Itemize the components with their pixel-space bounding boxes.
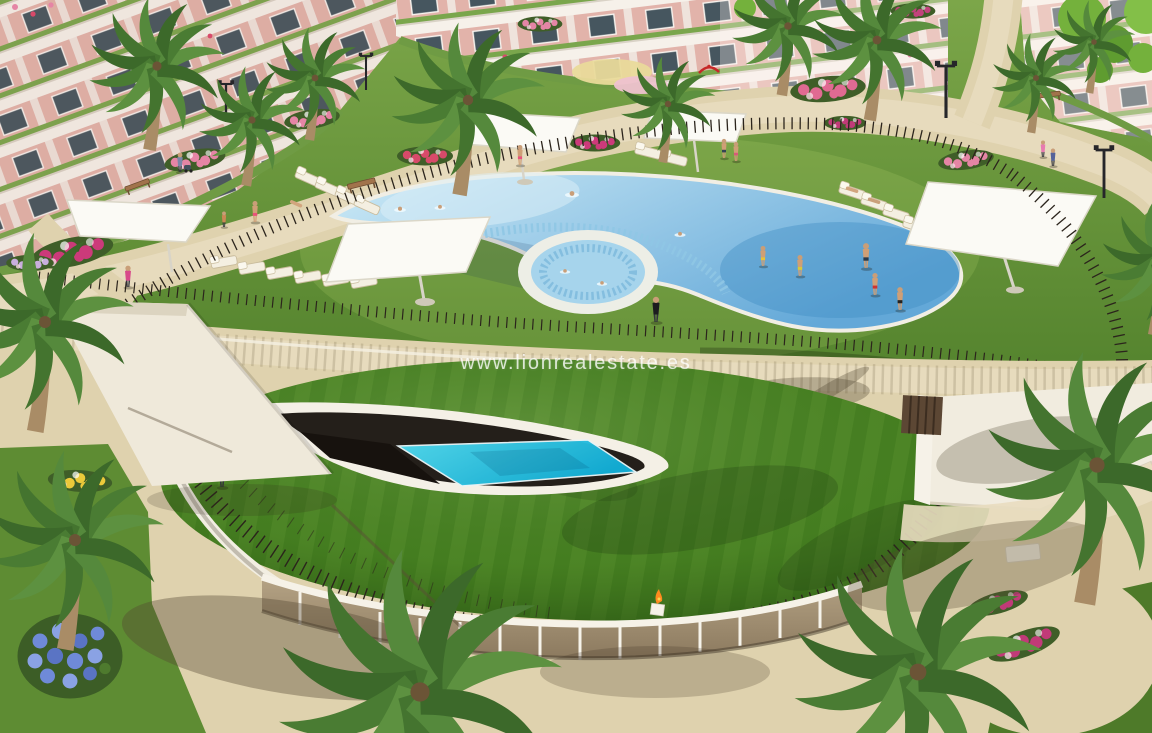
kids-pool — [518, 230, 658, 314]
resort-render: www.lionrealestate.es — [0, 0, 1152, 733]
palm-shadow — [540, 646, 770, 698]
watermark: www.lionrealestate.es — [460, 352, 691, 375]
slat-screen — [901, 395, 943, 435]
